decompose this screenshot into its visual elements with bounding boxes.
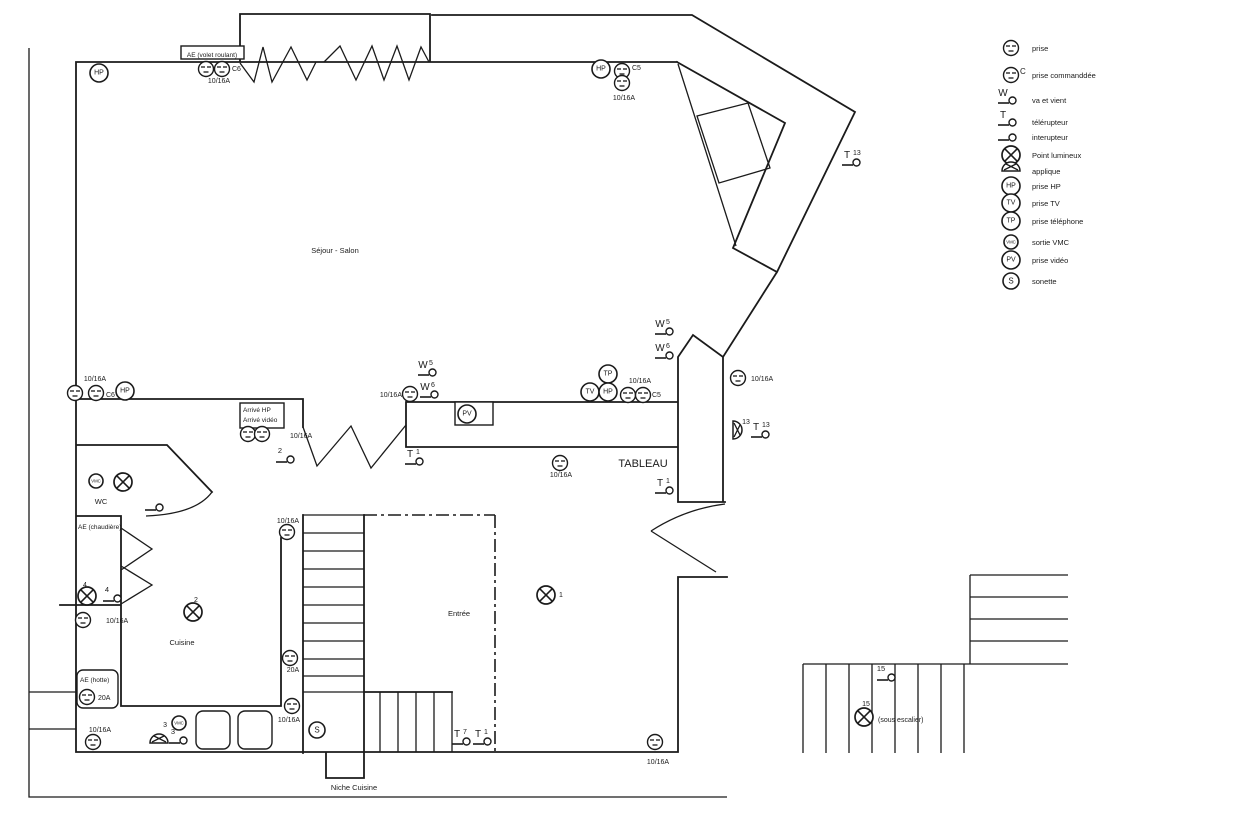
hp-icon: HP (592, 60, 610, 78)
plan-label: TV (1007, 200, 1016, 207)
legend-item-label: prise vidéo (1032, 256, 1068, 265)
plan-label: 2 (278, 446, 282, 455)
plan-label: C5 (652, 392, 661, 399)
plan-label: 10/16A (550, 472, 573, 479)
plan-label: (sous escalier) (878, 717, 924, 724)
plan-label: T (454, 729, 460, 740)
plan-label: TV (586, 389, 595, 396)
plan-label: 10/16A (647, 759, 670, 766)
sink-basin (238, 711, 272, 749)
plan-label: TP (1007, 218, 1016, 225)
sw_w-icon: W5 (418, 360, 436, 376)
plan-label: 6 (666, 343, 670, 350)
legend-item: prise (1004, 41, 1049, 56)
plan-label: AE (hotte) (80, 677, 109, 684)
tp-icon: TP (599, 365, 617, 383)
prise-icon (621, 388, 636, 403)
plan-label: T (753, 422, 759, 433)
pl-icon (537, 586, 555, 604)
fireplace (678, 64, 770, 246)
legend-item-label: interupteur (1032, 133, 1068, 142)
plan-label: W (998, 88, 1008, 99)
plan-label: T (475, 729, 481, 740)
sw_t-icon: T (998, 110, 1016, 126)
legend-item-label: sonette (1032, 277, 1057, 286)
tp-icon: TP (1002, 212, 1020, 230)
applique-icon (1002, 162, 1020, 171)
prise-icon (648, 735, 663, 750)
s-icon: S (309, 722, 325, 738)
plan-label: VMC (174, 721, 184, 726)
plan-label: S (314, 726, 319, 735)
hp-icon: HP (116, 382, 134, 400)
pl-icon (184, 603, 202, 621)
sw-icon (998, 134, 1016, 141)
prise-icon (86, 735, 101, 750)
prise-icon (68, 386, 83, 401)
walls-outline (60, 14, 855, 778)
plan-label: Arrivé vidéo (243, 417, 278, 424)
hp-icon: HP (599, 383, 617, 401)
floor-plan-drawing: HPHPT13W5W6PVW5W6TPTVHPT13HP2T1T1VMC4VMC… (0, 0, 1252, 834)
plan-label: 20A (98, 695, 111, 702)
applique-icon (733, 421, 742, 439)
plan-label: 15 (862, 701, 870, 708)
prise-icon (553, 456, 568, 471)
legend-item: TVprise TV (1002, 194, 1060, 212)
legend-item: TPprise téléphone (1002, 212, 1083, 230)
prise-icon (283, 651, 298, 666)
legend-item: interupteur (998, 133, 1068, 142)
legend-item-label: Point lumineux (1032, 151, 1081, 160)
plan-label: C6 (106, 392, 115, 399)
plan-label: TP (604, 371, 613, 378)
pl-icon (78, 587, 96, 605)
plan-label: 5 (666, 319, 670, 326)
plan-label: 13 (742, 419, 750, 426)
tv-icon: TV (581, 383, 599, 401)
hp-icon: HP (90, 64, 108, 82)
stairs-main (303, 515, 452, 752)
plan-label: W (418, 360, 428, 371)
plan-label: 10/16A (277, 518, 300, 525)
plan-label: 10/16A (613, 95, 636, 102)
sw_w-icon: W6 (655, 343, 673, 359)
legend-item: Ttélérupteur (998, 110, 1068, 127)
legend-item-label: prise téléphone (1032, 217, 1083, 226)
sink-basin (196, 711, 230, 749)
entree-boundary-dashdot (364, 515, 495, 753)
plan-label: 10/16A (84, 376, 107, 383)
legend-item-label: prise (1032, 44, 1048, 53)
plan-label: 7 (463, 729, 467, 736)
plan-label: 10/16A (290, 433, 313, 440)
prise-icon (80, 690, 95, 705)
plan-label: 1 (666, 478, 670, 485)
plan-label: Niche Cuisine (331, 783, 377, 792)
plan-label: 10/16A (629, 378, 652, 385)
plan-label: 15 (877, 664, 885, 673)
floor-plan-page: HPHPT13W5W6PVW5W6TPTVHPT13HP2T1T1VMC4VMC… (0, 0, 1252, 834)
plan-label: HP (94, 70, 104, 77)
prise-icon (76, 613, 91, 628)
window-zigzag-top (240, 46, 429, 82)
prise-icon (215, 62, 230, 77)
plan-label: C6 (232, 66, 241, 73)
entrance-door-arc (651, 504, 725, 572)
pv-icon: PV (458, 405, 476, 423)
vmc-icon: VMC (1004, 235, 1018, 249)
prise-icon (285, 699, 300, 714)
plan-label: S (1008, 277, 1013, 286)
prise-icon (241, 427, 256, 442)
plan-label: 3 (163, 722, 167, 729)
envelope-line (29, 48, 727, 797)
plan-label: PV (462, 411, 472, 418)
sw_t-icon: T1 (655, 478, 673, 494)
sw-icon: 15 (877, 664, 895, 681)
legend-item-label: prise TV (1032, 199, 1060, 208)
stairs-exterior (803, 575, 1068, 753)
plan-label: 10/16A (380, 392, 403, 399)
plan-label: W (655, 319, 665, 330)
legend-item-label: prise HP (1032, 182, 1061, 191)
prise_c-icon: C (1004, 67, 1027, 83)
sw_t-icon: T7 (452, 729, 470, 745)
prise-icon (403, 387, 418, 402)
hp-icon: HP (1002, 177, 1020, 195)
legend-item: Point lumineux (1002, 146, 1081, 164)
tv-icon: TV (1002, 194, 1020, 212)
sw_w-icon: W (998, 88, 1016, 104)
plan-label: T (407, 449, 413, 460)
plan-label: 10/16A (106, 618, 129, 625)
plan-label: TABLEAU (618, 458, 667, 470)
legend-item-label: prise commanddée (1032, 71, 1096, 80)
plan-label: 1 (416, 449, 420, 456)
legend-item: Ssonette (1003, 273, 1057, 289)
partition-zigzag (303, 425, 406, 468)
sw_t-icon: T13 (842, 150, 861, 166)
plan-label: HP (596, 66, 606, 73)
plan-label: WC (95, 497, 108, 506)
plan-label: 4 (105, 585, 109, 594)
plan-label: Séjour - Salon (311, 246, 359, 255)
sw_t-icon: T1 (473, 729, 491, 745)
plan-label: HP (603, 389, 613, 396)
pv-icon: PV (1002, 251, 1020, 269)
vmc-icon: VMC (89, 474, 103, 488)
plan-label: T (844, 150, 850, 161)
plan-label: C5 (632, 65, 641, 72)
plan-label: VMC (91, 479, 101, 484)
legend-item: Wva et vient (998, 88, 1067, 105)
plan-label: 10/16A (89, 727, 112, 734)
sw-icon: 2 (276, 446, 294, 463)
plan-label: HP (1006, 183, 1016, 190)
plan-label: W (655, 343, 665, 354)
pl-icon (855, 708, 873, 726)
legend-item: HPprise HP (1002, 177, 1061, 195)
prise-icon (89, 386, 104, 401)
prise-icon (636, 388, 651, 403)
sw_t-icon: T1 (405, 449, 423, 465)
prise-icon (615, 76, 630, 91)
prise-icon (280, 525, 295, 540)
plan-label: T (1000, 110, 1006, 121)
plan-label: 10/16A (278, 717, 301, 724)
plan-label: 3 (171, 727, 175, 736)
plan-label: 13 (853, 150, 861, 157)
plan-label: 10/16A (208, 78, 231, 85)
sw-icon: 4 (103, 585, 121, 602)
plan-label: T (657, 478, 663, 489)
plan-label: 20A (287, 667, 300, 674)
applique-icon (150, 734, 168, 743)
plan-label: 5 (429, 360, 433, 367)
s-icon: S (1003, 273, 1019, 289)
legend-item: VMCsortie VMC (1004, 235, 1070, 249)
plan-label: HP (120, 388, 130, 395)
sw_w-icon: W5 (655, 319, 673, 335)
legend-item-label: sortie VMC (1032, 238, 1070, 247)
plan-label: AE (chaudière) (78, 524, 121, 531)
pl-icon (114, 473, 132, 491)
legend-item: PVprise vidéo (1002, 251, 1068, 269)
legend: priseCprise commanddéeWva et vientTtélér… (998, 41, 1096, 290)
plan-label: 13 (762, 422, 770, 429)
wc-door-arc (146, 492, 212, 516)
plan-label: 1 (484, 729, 488, 736)
prise-icon (1004, 41, 1019, 56)
plan-label: C (1020, 67, 1026, 76)
plan-label: Arrivé HP (243, 407, 271, 414)
prise-icon (731, 371, 746, 386)
legend-item-label: va et vient (1032, 96, 1067, 105)
legend-item-label: applique (1032, 167, 1060, 176)
plan-labels-layer: AE (volet roulant)C610/16AC510/16ASéjour… (78, 52, 924, 792)
plan-label: W (420, 382, 430, 393)
prise-icon (199, 62, 214, 77)
plan-label: 10/16A (751, 376, 774, 383)
plan-label: Cuisine (169, 638, 194, 647)
plan-label: 2 (194, 597, 198, 604)
legend-item-label: télérupteur (1032, 118, 1068, 127)
plan-label: AE (volet roulant) (187, 52, 237, 59)
sw_w-icon: W6 (420, 382, 438, 398)
chaudiere-door-chevrons (121, 528, 152, 604)
plan-label: VMC (1006, 240, 1016, 245)
legend-item: Cprise commanddée (1004, 67, 1096, 83)
prise-icon (255, 427, 270, 442)
plan-label: 1 (559, 592, 563, 599)
plan-label: PV (1006, 257, 1016, 264)
plan-label: 6 (431, 382, 435, 389)
sw-icon (145, 504, 163, 511)
plan-label: 4 (83, 582, 87, 589)
sw_t-icon: T13 (751, 422, 770, 438)
plan-label: Entrée (448, 609, 470, 618)
legend-item: applique (1002, 162, 1060, 176)
